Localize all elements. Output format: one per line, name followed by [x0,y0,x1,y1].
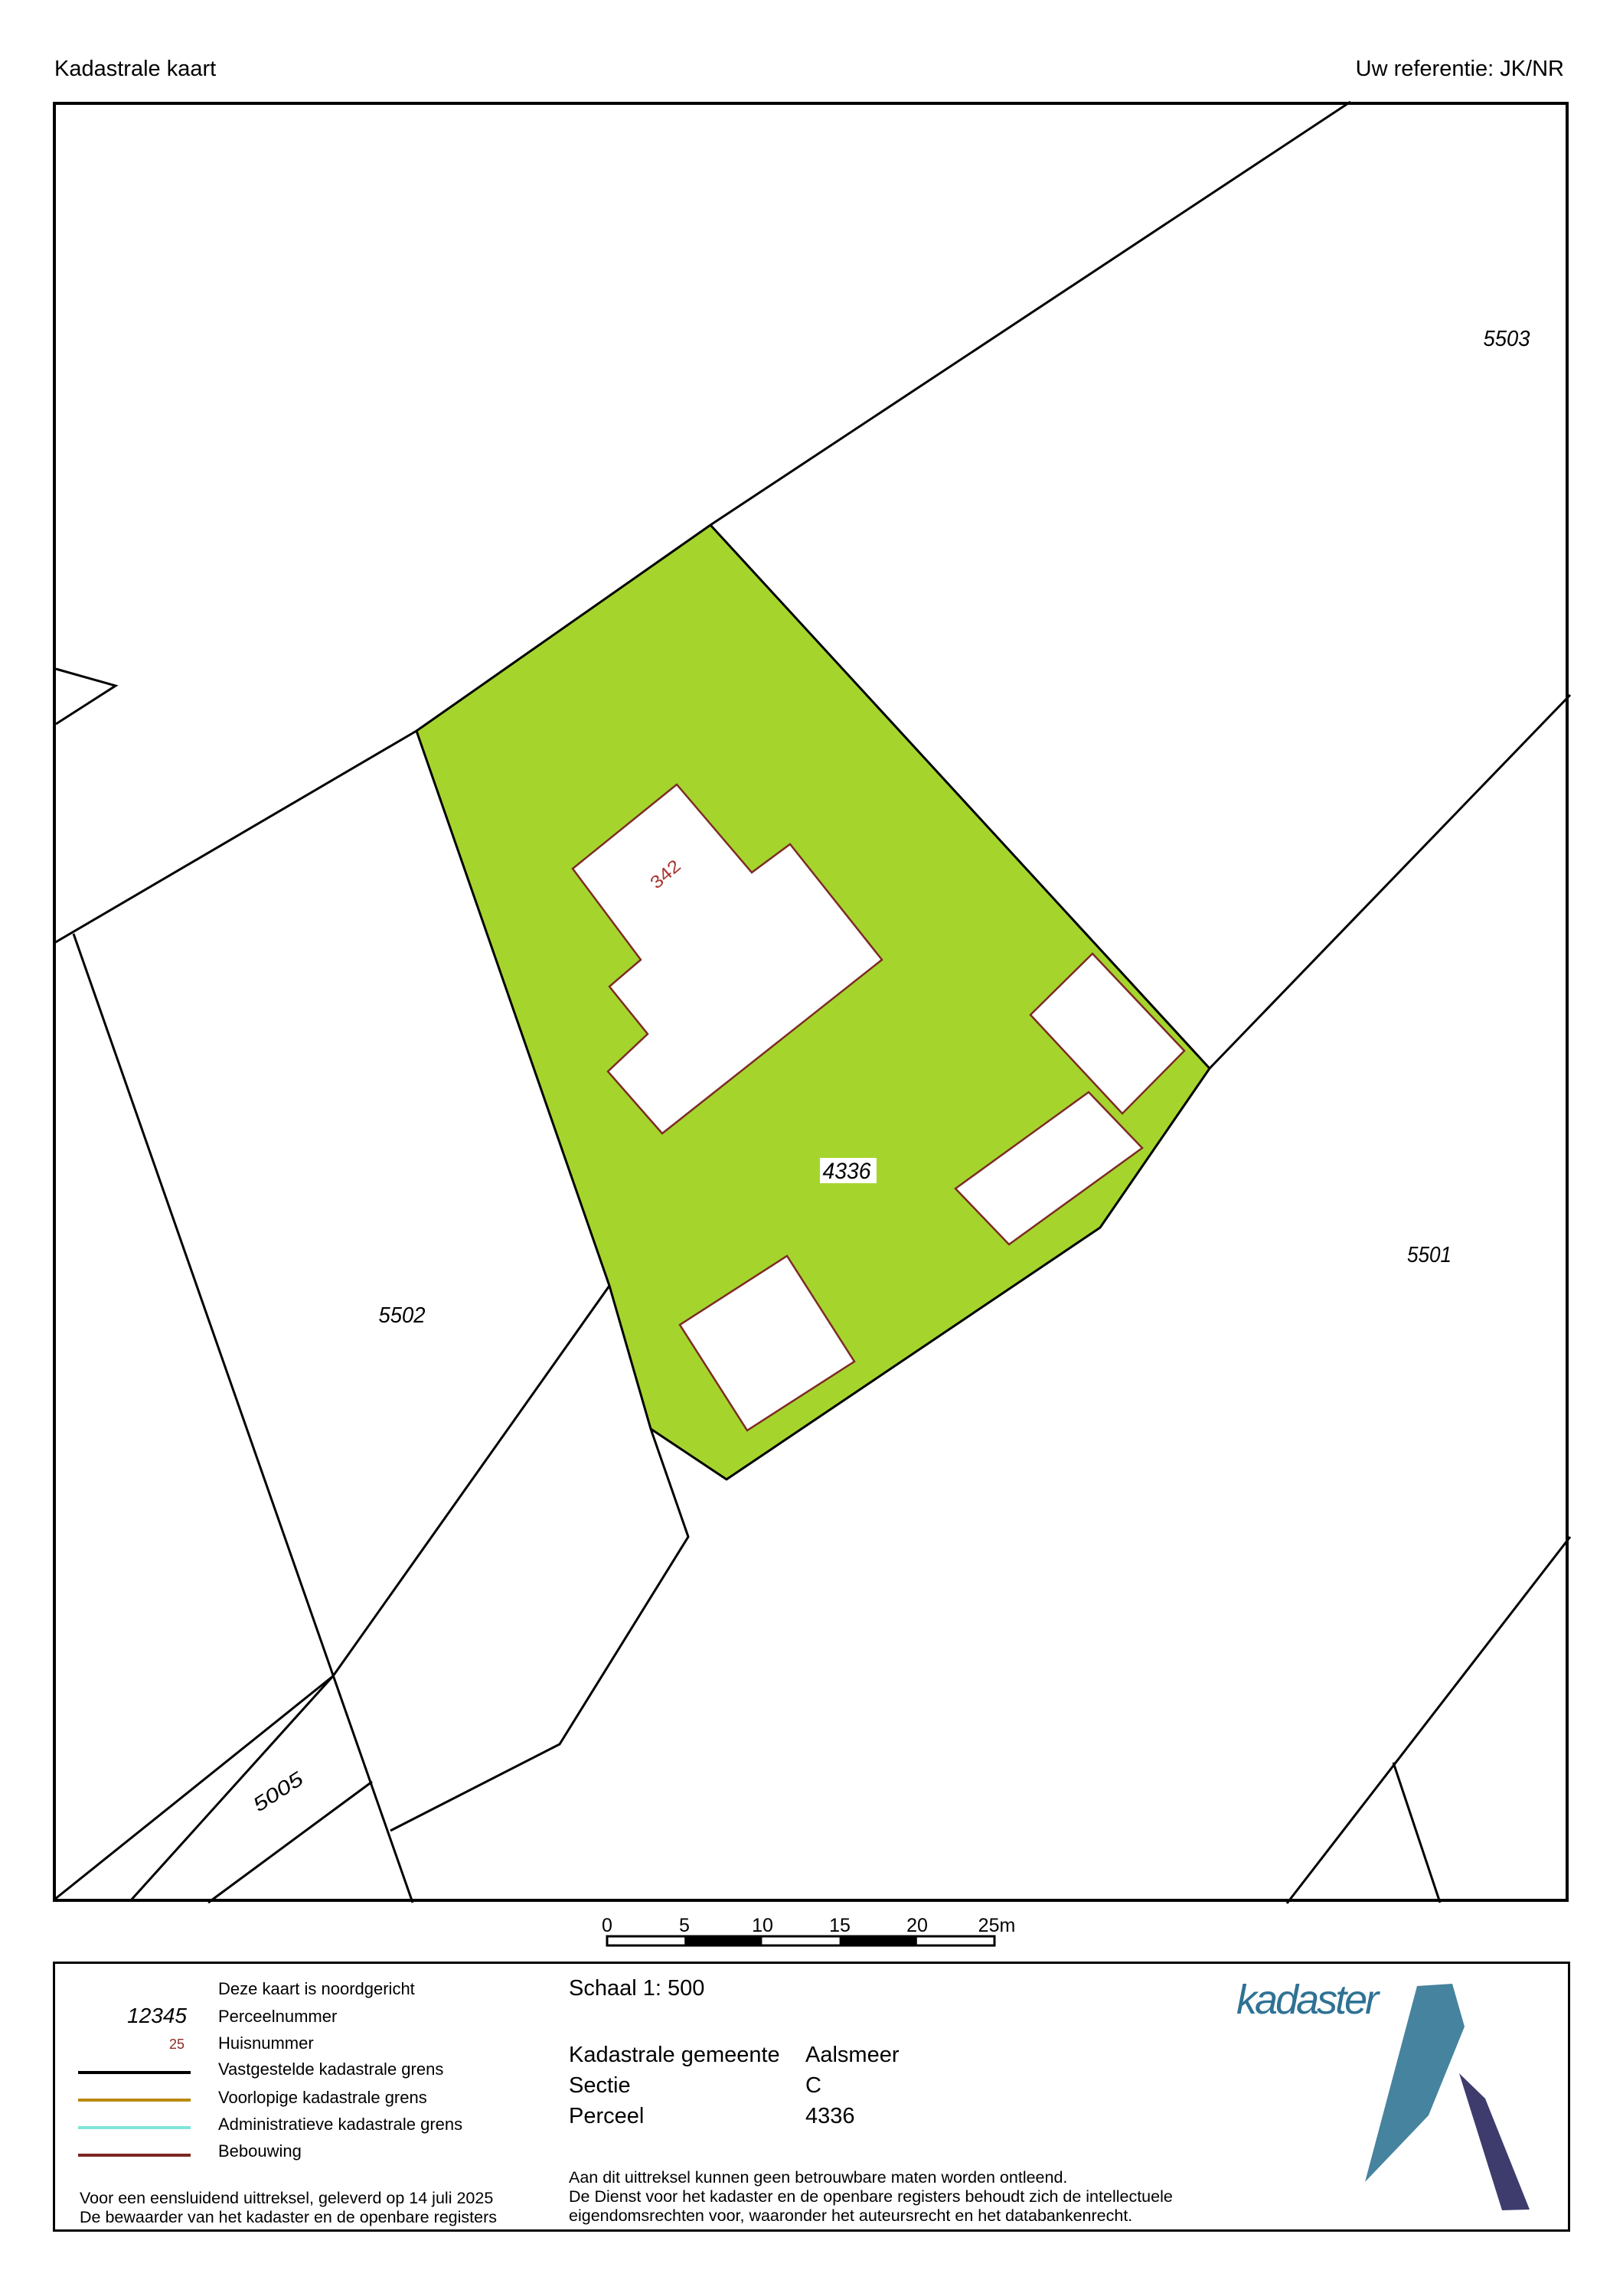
svg-text:kadaster: kadaster [1236,1977,1380,2023]
svg-text:5503: 5503 [1484,327,1530,351]
svg-text:5005: 5005 [249,1766,308,1816]
svg-text:4336: 4336 [823,1159,871,1184]
svg-text:5502: 5502 [379,1303,426,1328]
svg-text:25m: 25m [978,1915,1016,1936]
svg-text:10: 10 [752,1915,773,1936]
svg-text:15: 15 [829,1915,851,1936]
svg-text:5501: 5501 [1407,1243,1452,1267]
svg-text:0: 0 [602,1915,612,1936]
svg-text:20: 20 [906,1915,928,1936]
svg-text:5: 5 [679,1915,690,1936]
